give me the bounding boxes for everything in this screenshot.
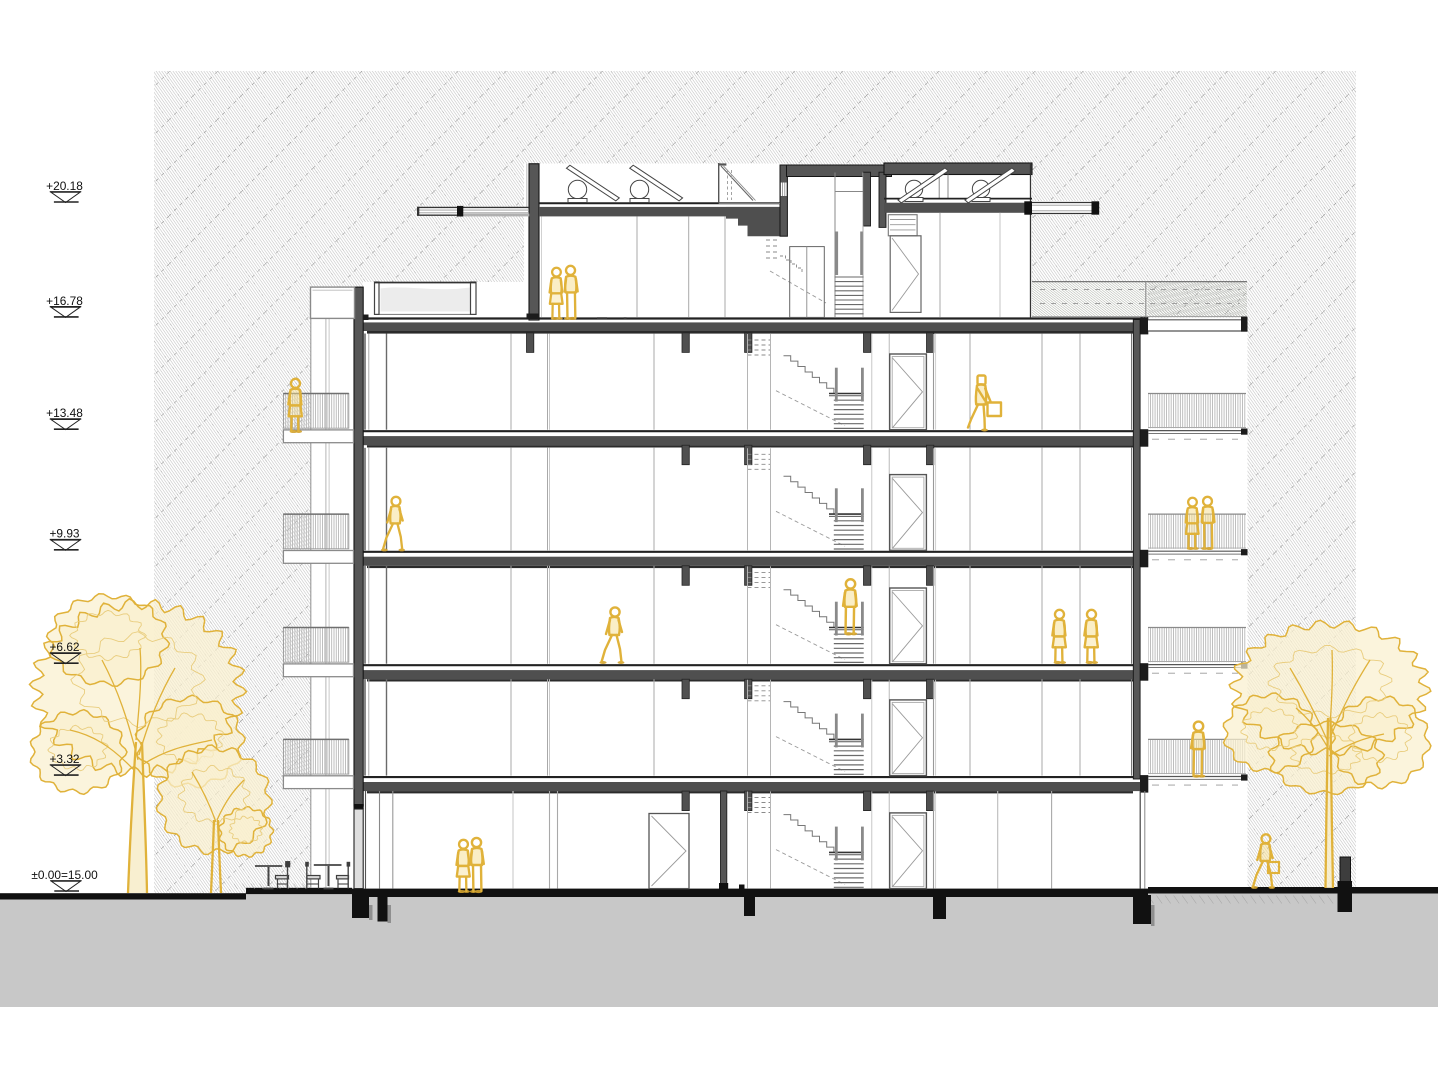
svg-text:+9.93: +9.93 (49, 527, 79, 541)
svg-text:+13.48: +13.48 (46, 406, 83, 420)
svg-text:+6.62: +6.62 (49, 640, 79, 654)
svg-text:±0.00=15.00: ±0.00=15.00 (31, 868, 98, 882)
svg-text:+16.78: +16.78 (46, 294, 83, 308)
svg-text:+3.32: +3.32 (49, 752, 79, 766)
svg-text:+20.18: +20.18 (46, 179, 83, 193)
